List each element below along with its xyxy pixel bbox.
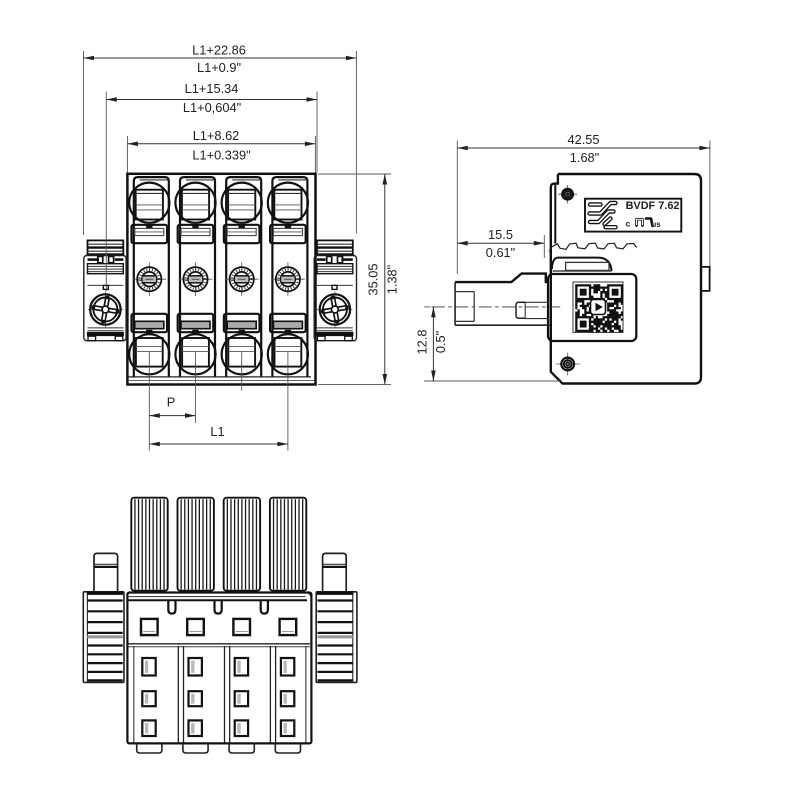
svg-text:BVDF 7.62: BVDF 7.62 (626, 200, 680, 212)
svg-text:0.61": 0.61" (486, 245, 515, 260)
svg-text:15.5: 15.5 (488, 227, 513, 242)
svg-text:P: P (167, 395, 176, 410)
svg-text:L1+0.339": L1+0.339" (192, 148, 250, 163)
svg-text:42.55: 42.55 (567, 132, 599, 147)
svg-text:12.8: 12.8 (415, 330, 430, 355)
svg-text:L1+22.86: L1+22.86 (192, 43, 246, 58)
svg-text:L1: L1 (210, 424, 224, 439)
svg-text:0.5": 0.5" (433, 331, 448, 353)
svg-text:1.68": 1.68" (570, 150, 599, 165)
svg-text:L1+0,604": L1+0,604" (183, 100, 241, 115)
svg-text:L1+8.62: L1+8.62 (193, 128, 240, 143)
svg-text:L1+0.9": L1+0.9" (197, 60, 241, 75)
svg-text:us: us (651, 220, 661, 229)
svg-text:c: c (626, 219, 631, 229)
svg-text:1.38": 1.38" (385, 265, 400, 294)
svg-text:35.05: 35.05 (366, 263, 381, 295)
svg-text:L1+15.34: L1+15.34 (185, 81, 239, 96)
